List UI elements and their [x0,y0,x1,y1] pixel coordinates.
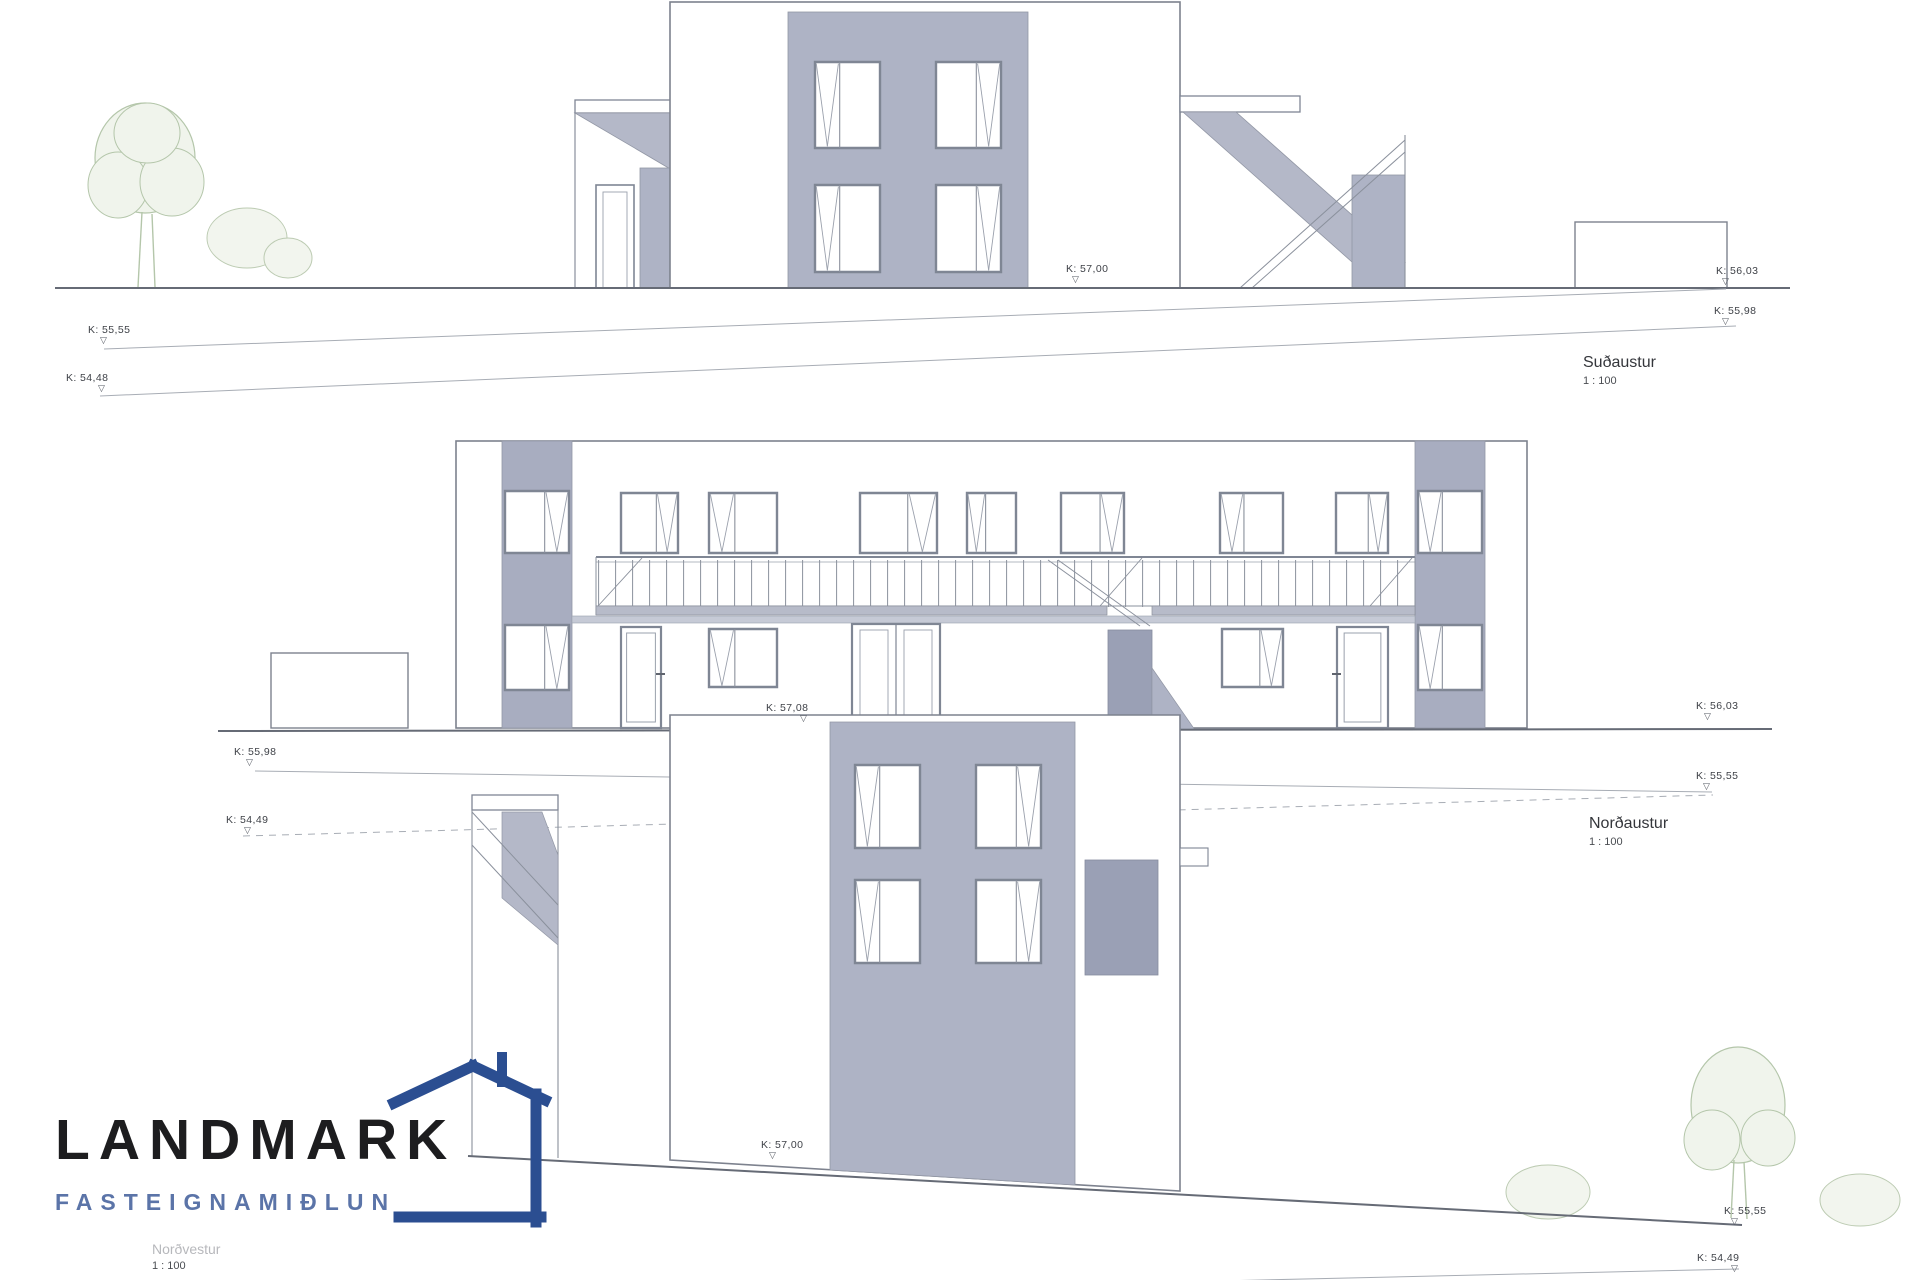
elevation-value: K: 57,00 [761,1140,803,1151]
elevation-marker-s-k5448: K: 54,48 ▽ [66,373,108,393]
benchmark-triangle-icon: ▽ [769,1151,803,1160]
elevation-marker-v-k5700: K: 57,00 ▽ [761,1140,803,1160]
elevation-marker-n-k5598: K: 55,98 ▽ [234,747,276,767]
elevation-value: K: 57,08 [766,703,808,714]
caption-nordvestur: Norðvestur 1 : 100 [152,1241,220,1273]
benchmark-triangle-icon: ▽ [1731,1217,1766,1226]
elevation-value: K: 54,49 [1697,1253,1739,1264]
elevation-marker-s-k5700: K: 57,00 ▽ [1066,264,1108,284]
elevation-value: K: 57,00 [1066,264,1108,275]
tree-icon [88,103,312,287]
elevation-value: K: 55,55 [1724,1206,1766,1217]
elevation-marker-n-k5449: K: 54,49 ▽ [226,815,268,835]
elevation-marker-v-k5555: K: 55,55 ▽ [1724,1206,1766,1226]
elevation-caption: Norðvestur [152,1241,220,1257]
elevation-value: K: 56,03 [1716,266,1758,277]
benchmark-triangle-icon: ▽ [244,826,268,835]
elevation-value: K: 54,49 [226,815,268,826]
elevation-caption: Suðaustur [1583,354,1656,372]
caption-nordaustur: Norðaustur 1 : 100 [1589,815,1668,849]
elevation-marker-v-k5449: K: 54,49 ▽ [1697,1253,1739,1273]
elevation-scale: 1 : 100 [152,1260,220,1273]
drawing-sheet: K: 57,00 ▽ K: 56,03 ▽ K: 55,98 ▽ K: 55,5… [0,0,1920,1280]
elevation-value: K: 55,55 [1696,771,1738,782]
tree-icon [1506,1047,1900,1226]
benchmark-triangle-icon: ▽ [1072,275,1108,284]
benchmark-triangle-icon: ▽ [1722,277,1758,286]
benchmark-triangle-icon: ▽ [246,758,276,767]
elevation-value: K: 55,98 [234,747,276,758]
sudaustur-drawing [55,2,1790,396]
elevation-value: K: 55,55 [88,325,130,336]
elevation-value: K: 55,98 [1714,306,1756,317]
logo-name: LANDMARK [55,1112,456,1169]
elevation-scale: 1 : 100 [1589,836,1668,849]
elevation-marker-n-k5603: K: 56,03 ▽ [1696,701,1738,721]
elevation-value: K: 56,03 [1696,701,1738,712]
logo-subtitle: FASTEIGNAMIÐLUN [55,1191,456,1214]
elevation-caption: Norðaustur [1589,815,1668,833]
elevation-marker-n-k5555: K: 55,55 ▽ [1696,771,1738,791]
benchmark-triangle-icon: ▽ [800,714,808,723]
nordvestur-drawing [468,715,1900,1280]
landmark-logo: LANDMARK FASTEIGNAMIÐLUN [55,1112,456,1214]
benchmark-triangle-icon: ▽ [100,336,130,345]
elevation-drawing [0,0,1920,1280]
caption-sudaustur: Suðaustur 1 : 100 [1583,354,1656,388]
benchmark-triangle-icon: ▽ [1731,1264,1739,1273]
elevation-marker-s-k5603: K: 56,03 ▽ [1716,266,1758,286]
elevation-marker-s-k5555: K: 55,55 ▽ [88,325,130,345]
benchmark-triangle-icon: ▽ [1722,317,1756,326]
benchmark-triangle-icon: ▽ [1704,712,1738,721]
elevation-marker-s-k5598: K: 55,98 ▽ [1714,306,1756,326]
elevation-marker-n-k5708: K: 57,08 ▽ [766,703,808,723]
benchmark-triangle-icon: ▽ [98,384,108,393]
elevation-scale: 1 : 100 [1583,375,1656,388]
elevation-value: K: 54,48 [66,373,108,384]
benchmark-triangle-icon: ▽ [1703,782,1738,791]
